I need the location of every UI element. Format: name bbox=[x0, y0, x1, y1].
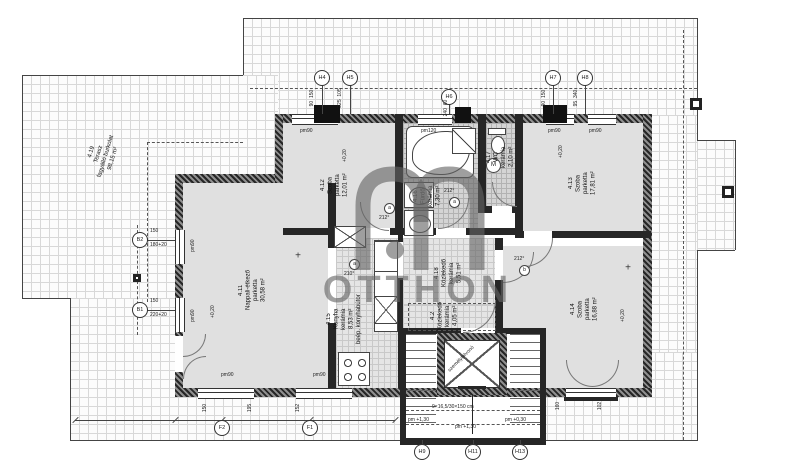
kitchen-sink bbox=[374, 296, 398, 324]
room-name: Közlekedő bbox=[438, 286, 446, 346]
room-name: Szoba bbox=[328, 148, 336, 222]
room-label-414: 4.14 Szoba parketta 16,88 m² bbox=[570, 270, 604, 348]
floor-plan-drawing: M 4.11 Nappali-étkező parketta 30,58 bbox=[0, 0, 800, 476]
partition-wall bbox=[478, 114, 486, 213]
dimension-label: 90 150 bbox=[309, 90, 315, 107]
note-label: 9×16,5/30×150 cm bbox=[432, 404, 474, 410]
pillar bbox=[543, 105, 567, 123]
boundary-line bbox=[243, 18, 697, 19]
boundary-line bbox=[735, 140, 736, 250]
grid-bubble: H4 bbox=[314, 70, 330, 86]
wall bbox=[175, 174, 283, 183]
elevation-label: +0,20 bbox=[342, 149, 348, 162]
window bbox=[296, 388, 352, 399]
room-area: 7,30 m² bbox=[436, 158, 444, 234]
room-name: Nappali-étkező bbox=[246, 244, 254, 336]
dimension-label: 150 bbox=[202, 404, 208, 412]
dimension-label: 150 bbox=[150, 228, 158, 234]
boundary-line bbox=[697, 250, 698, 440]
room-material: kerámia bbox=[428, 158, 436, 234]
leader-line bbox=[350, 85, 351, 114]
boundary-line bbox=[697, 18, 698, 140]
boundary-line bbox=[70, 440, 698, 441]
door-swing-marker: a bbox=[449, 197, 460, 208]
sill-height-label: pm90 bbox=[190, 309, 196, 322]
elevation-label: +0,20 bbox=[620, 309, 626, 322]
pillar bbox=[455, 107, 471, 123]
door-swing-marker: b bbox=[519, 265, 530, 276]
room-id: 4.15 bbox=[326, 274, 334, 364]
door-opening bbox=[495, 250, 503, 280]
room-material: kerámia bbox=[341, 274, 349, 364]
room-id: 4.13 bbox=[568, 144, 576, 222]
column-marker bbox=[690, 98, 702, 110]
sill-height-label: pm90 bbox=[313, 372, 326, 378]
grid-bubble: H5 bbox=[342, 70, 358, 86]
shaft-box bbox=[334, 226, 366, 248]
grid-bubble: H7 bbox=[545, 70, 561, 86]
grid-bubble: H13 bbox=[512, 444, 528, 460]
room-id: 4.12 bbox=[320, 148, 328, 222]
leader-line bbox=[147, 240, 175, 241]
window bbox=[175, 298, 185, 332]
partition-wall bbox=[515, 114, 523, 238]
note-label: pm +1,30 bbox=[455, 424, 476, 430]
column-marker bbox=[133, 274, 141, 282]
door-opening bbox=[398, 242, 403, 278]
room-label-42: 4.2 Közlekedő kerámia 4,05 m² bbox=[430, 286, 462, 346]
room-name: Konyha bbox=[334, 274, 342, 364]
room-note: beép. konyhabútor bbox=[356, 274, 364, 364]
dimension-label: 152 bbox=[295, 404, 301, 412]
axis-dashed-line bbox=[250, 88, 697, 89]
terrace-door-opening bbox=[175, 336, 183, 372]
dimension-label: 90 150 bbox=[541, 90, 547, 107]
room-material: parketta bbox=[253, 244, 261, 336]
door-swing-marker: a bbox=[384, 203, 395, 214]
grid-bubble: B1 bbox=[132, 302, 148, 318]
stair-flight-left bbox=[406, 334, 436, 430]
leader-line bbox=[449, 104, 450, 114]
note-label: 210° bbox=[344, 271, 354, 277]
room-label-412: 4.12 Szoba parketta 12,01 m² bbox=[320, 148, 354, 222]
room-id: 4.11 bbox=[238, 244, 246, 336]
note-label: 212° bbox=[514, 256, 524, 262]
dimension-label: 195 bbox=[247, 404, 253, 412]
cross-mark: + bbox=[625, 263, 631, 274]
door-swing-marker: a bbox=[349, 259, 360, 270]
room-name: Szoba bbox=[576, 144, 584, 222]
axis-dashed-line bbox=[683, 30, 684, 440]
sill-height-label: pm90 bbox=[589, 128, 602, 134]
partition-wall bbox=[395, 114, 403, 235]
room-id: 4.14 bbox=[570, 270, 578, 348]
wall bbox=[643, 114, 652, 397]
room-id: 4.16 bbox=[413, 158, 421, 234]
room-area: 16,88 m² bbox=[593, 270, 601, 348]
grid-bubble: B2 bbox=[132, 232, 148, 248]
leader-line bbox=[147, 310, 175, 311]
dimension-label: 102 bbox=[597, 402, 603, 410]
door-opening bbox=[492, 206, 512, 213]
window bbox=[175, 230, 185, 264]
sill-height-label: pm90 bbox=[548, 128, 561, 134]
boundary-line bbox=[22, 75, 23, 298]
room-name: Szoba bbox=[578, 270, 586, 348]
column-marker bbox=[722, 186, 734, 198]
leader-line bbox=[553, 85, 554, 114]
grid-bubble: F2 bbox=[214, 420, 230, 436]
dimension-label: 180+20 bbox=[150, 242, 167, 248]
stair-flight-right bbox=[510, 334, 540, 430]
sill-height-label: pm120 bbox=[421, 128, 436, 134]
note-label: pm +0,30 bbox=[505, 417, 526, 423]
grid-bubble: F1 bbox=[302, 420, 318, 436]
window bbox=[588, 114, 616, 125]
sill-height-label: pm90 bbox=[221, 372, 234, 378]
room-name: WC bbox=[494, 124, 502, 190]
sill-height-label: pm90 bbox=[190, 239, 196, 252]
room-material: kerámia bbox=[445, 286, 453, 346]
room-id: 4.2 bbox=[430, 286, 438, 346]
boundary-line bbox=[243, 18, 244, 75]
room-label-413: 4.13 Szoba parketta 17,81 m² bbox=[568, 144, 602, 222]
stair-wall bbox=[540, 334, 546, 445]
leader-line bbox=[322, 85, 323, 114]
room-label-415: 4.15 Konyha kerámia 8,53 m² beép. konyha… bbox=[326, 274, 368, 364]
boundary-line bbox=[22, 298, 70, 299]
boundary-line bbox=[22, 75, 243, 76]
room-label-411: 4.11 Nappali-étkező parketta 30,58 m² bbox=[238, 244, 276, 336]
room-label-417: 4.17 WC kerámia 2,10 m² bbox=[486, 124, 514, 190]
grid-bubble: H9 bbox=[414, 444, 430, 460]
note-label: 212° bbox=[379, 215, 389, 221]
dimension-label: 150 bbox=[150, 298, 158, 304]
roof-dashed-line bbox=[147, 142, 148, 302]
dimension-label: 220+20 bbox=[150, 312, 167, 318]
room-name: Fürdő bbox=[421, 158, 429, 234]
room-area: 4,05 m² bbox=[453, 286, 461, 346]
room-area: 17,81 m² bbox=[591, 144, 599, 222]
room-material: parketta bbox=[585, 270, 593, 348]
elevator-door bbox=[458, 386, 486, 389]
dimension-label: 225 105 bbox=[337, 88, 343, 107]
grid-bubble: H11 bbox=[465, 444, 481, 460]
dimension-label: 240 60 bbox=[443, 100, 449, 117]
room-area: 2,10 m² bbox=[509, 124, 517, 190]
boundary-line bbox=[697, 140, 735, 141]
dimension-label: 95 340 bbox=[573, 90, 579, 107]
wall bbox=[275, 114, 283, 183]
room-area: 8,53 m² bbox=[349, 274, 357, 364]
cross-mark: + bbox=[295, 251, 301, 262]
grid-bubble: H8 bbox=[577, 70, 593, 86]
room-id: 4.17 bbox=[486, 124, 494, 190]
room-label-416: 4.16 Fürdő kerámia 7,30 m² bbox=[413, 158, 447, 234]
dimension-label: 160 bbox=[555, 402, 561, 410]
room-material: kerámia bbox=[501, 124, 509, 190]
room-material: parketta bbox=[583, 144, 591, 222]
window bbox=[198, 388, 254, 399]
dimension-line bbox=[75, 420, 395, 421]
room-area: 30,58 m² bbox=[261, 244, 269, 336]
door-opening bbox=[524, 231, 552, 238]
boundary-line bbox=[70, 298, 71, 440]
elevation-label: +0,20 bbox=[558, 145, 564, 158]
stair-landing-line bbox=[406, 410, 540, 411]
leader-line bbox=[585, 85, 586, 114]
sill-height-label: pm90 bbox=[300, 128, 313, 134]
elevation-label: +0,20 bbox=[210, 305, 216, 318]
note-label: pm +1,30 bbox=[408, 417, 429, 423]
roof-dashed-line bbox=[147, 142, 243, 143]
door-sill bbox=[564, 397, 618, 401]
bath-niche bbox=[452, 128, 476, 154]
boundary-line bbox=[697, 250, 735, 251]
note-label: 212° bbox=[444, 188, 454, 194]
